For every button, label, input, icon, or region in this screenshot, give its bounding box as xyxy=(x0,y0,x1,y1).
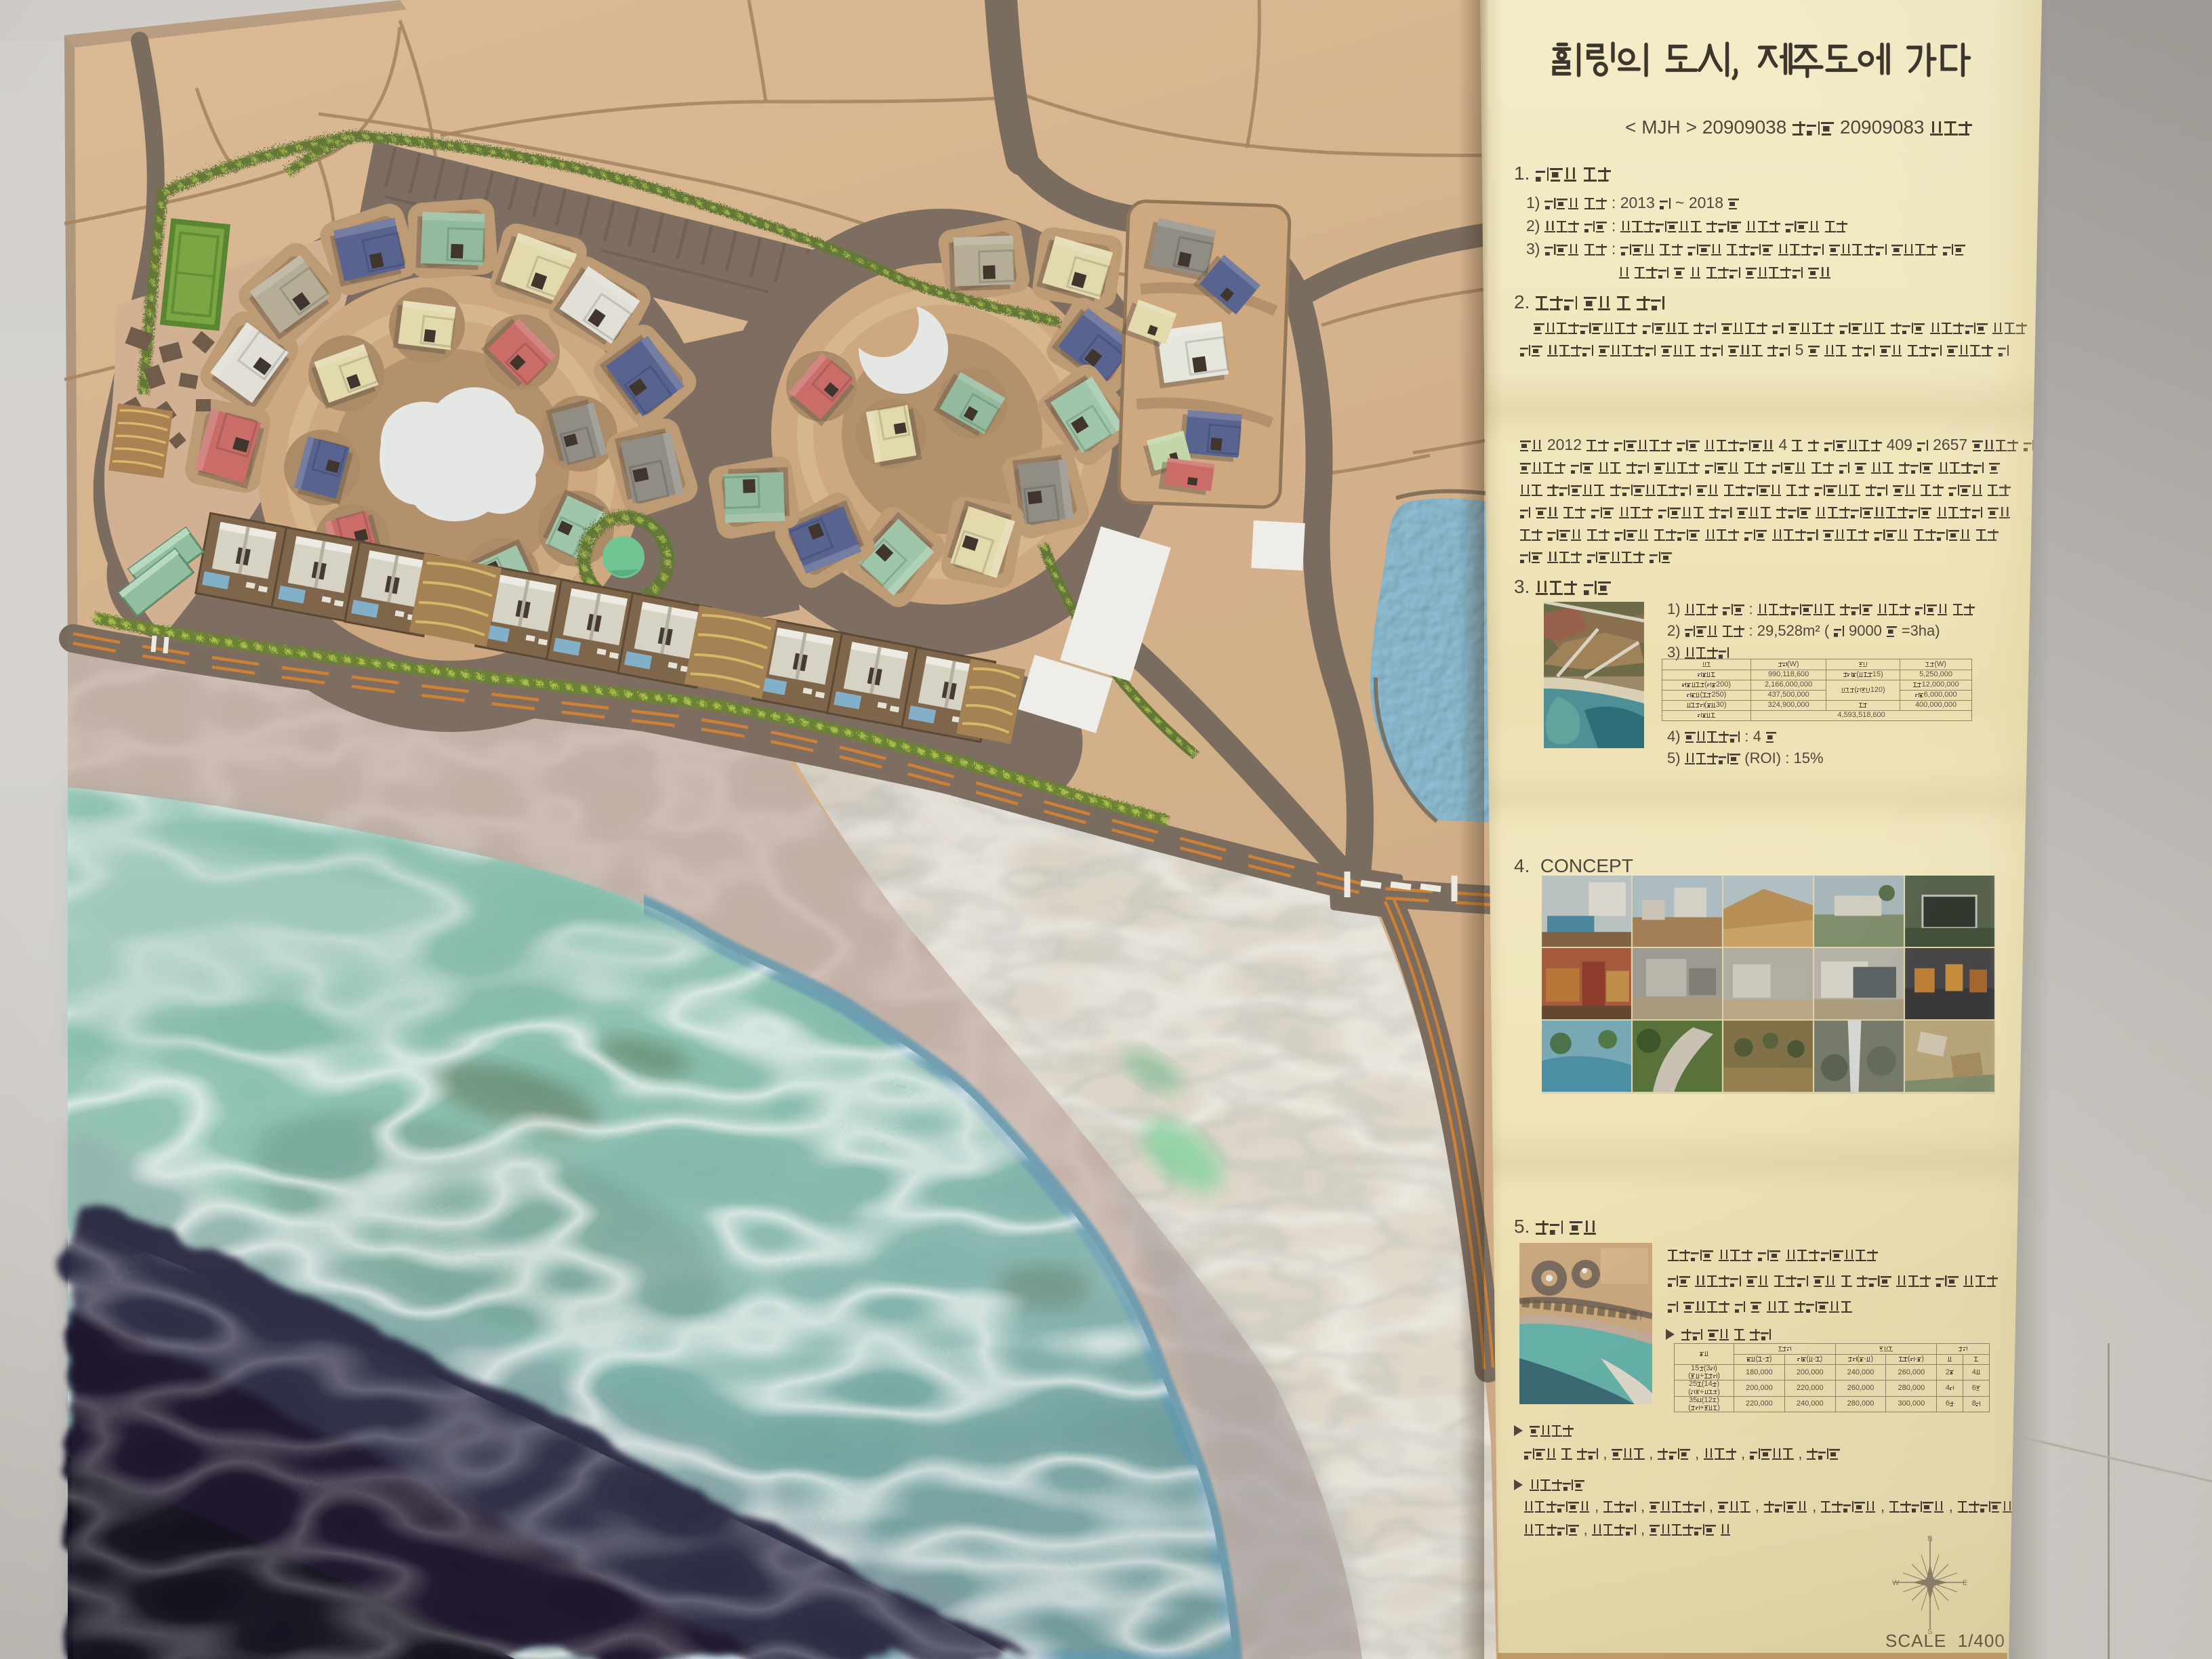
svg-text:E: E xyxy=(1963,1579,1967,1587)
svg-text:N: N xyxy=(1927,1535,1933,1543)
svg-text:W: W xyxy=(1892,1579,1900,1587)
